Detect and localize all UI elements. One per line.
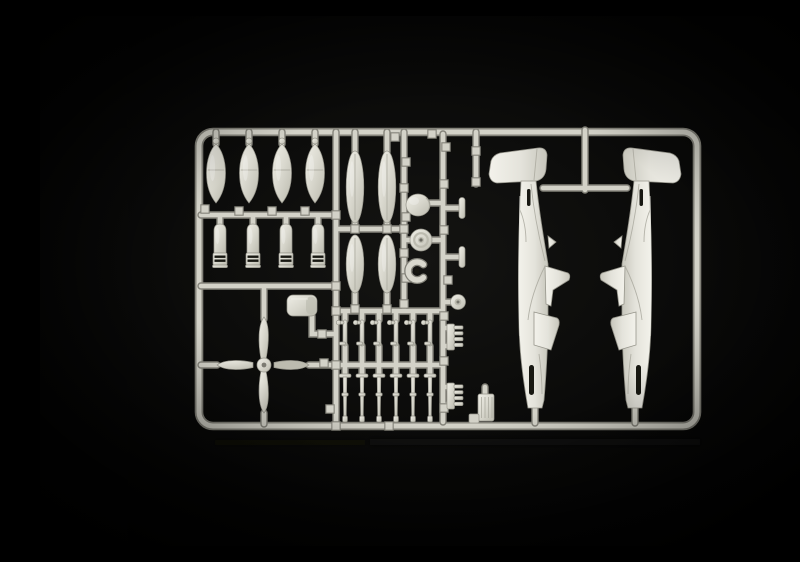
finned-bomb (311, 224, 326, 268)
spinner (406, 194, 430, 216)
mounting-bracket (459, 198, 465, 219)
tail-wheel-disc (451, 295, 466, 310)
drop-tank-half (378, 151, 396, 223)
sprue-photo (40, 16, 800, 546)
photo (40, 16, 800, 546)
drop-tank-half (346, 235, 364, 293)
finned-bomb (213, 224, 228, 268)
finned-bomb (279, 224, 294, 268)
finned-bomb (246, 224, 261, 268)
main-wheel (410, 229, 432, 251)
mounting-bracket (459, 247, 465, 268)
drop-tank-half (378, 235, 396, 293)
drop-tank-half (346, 151, 364, 223)
air-scoop (287, 295, 317, 316)
